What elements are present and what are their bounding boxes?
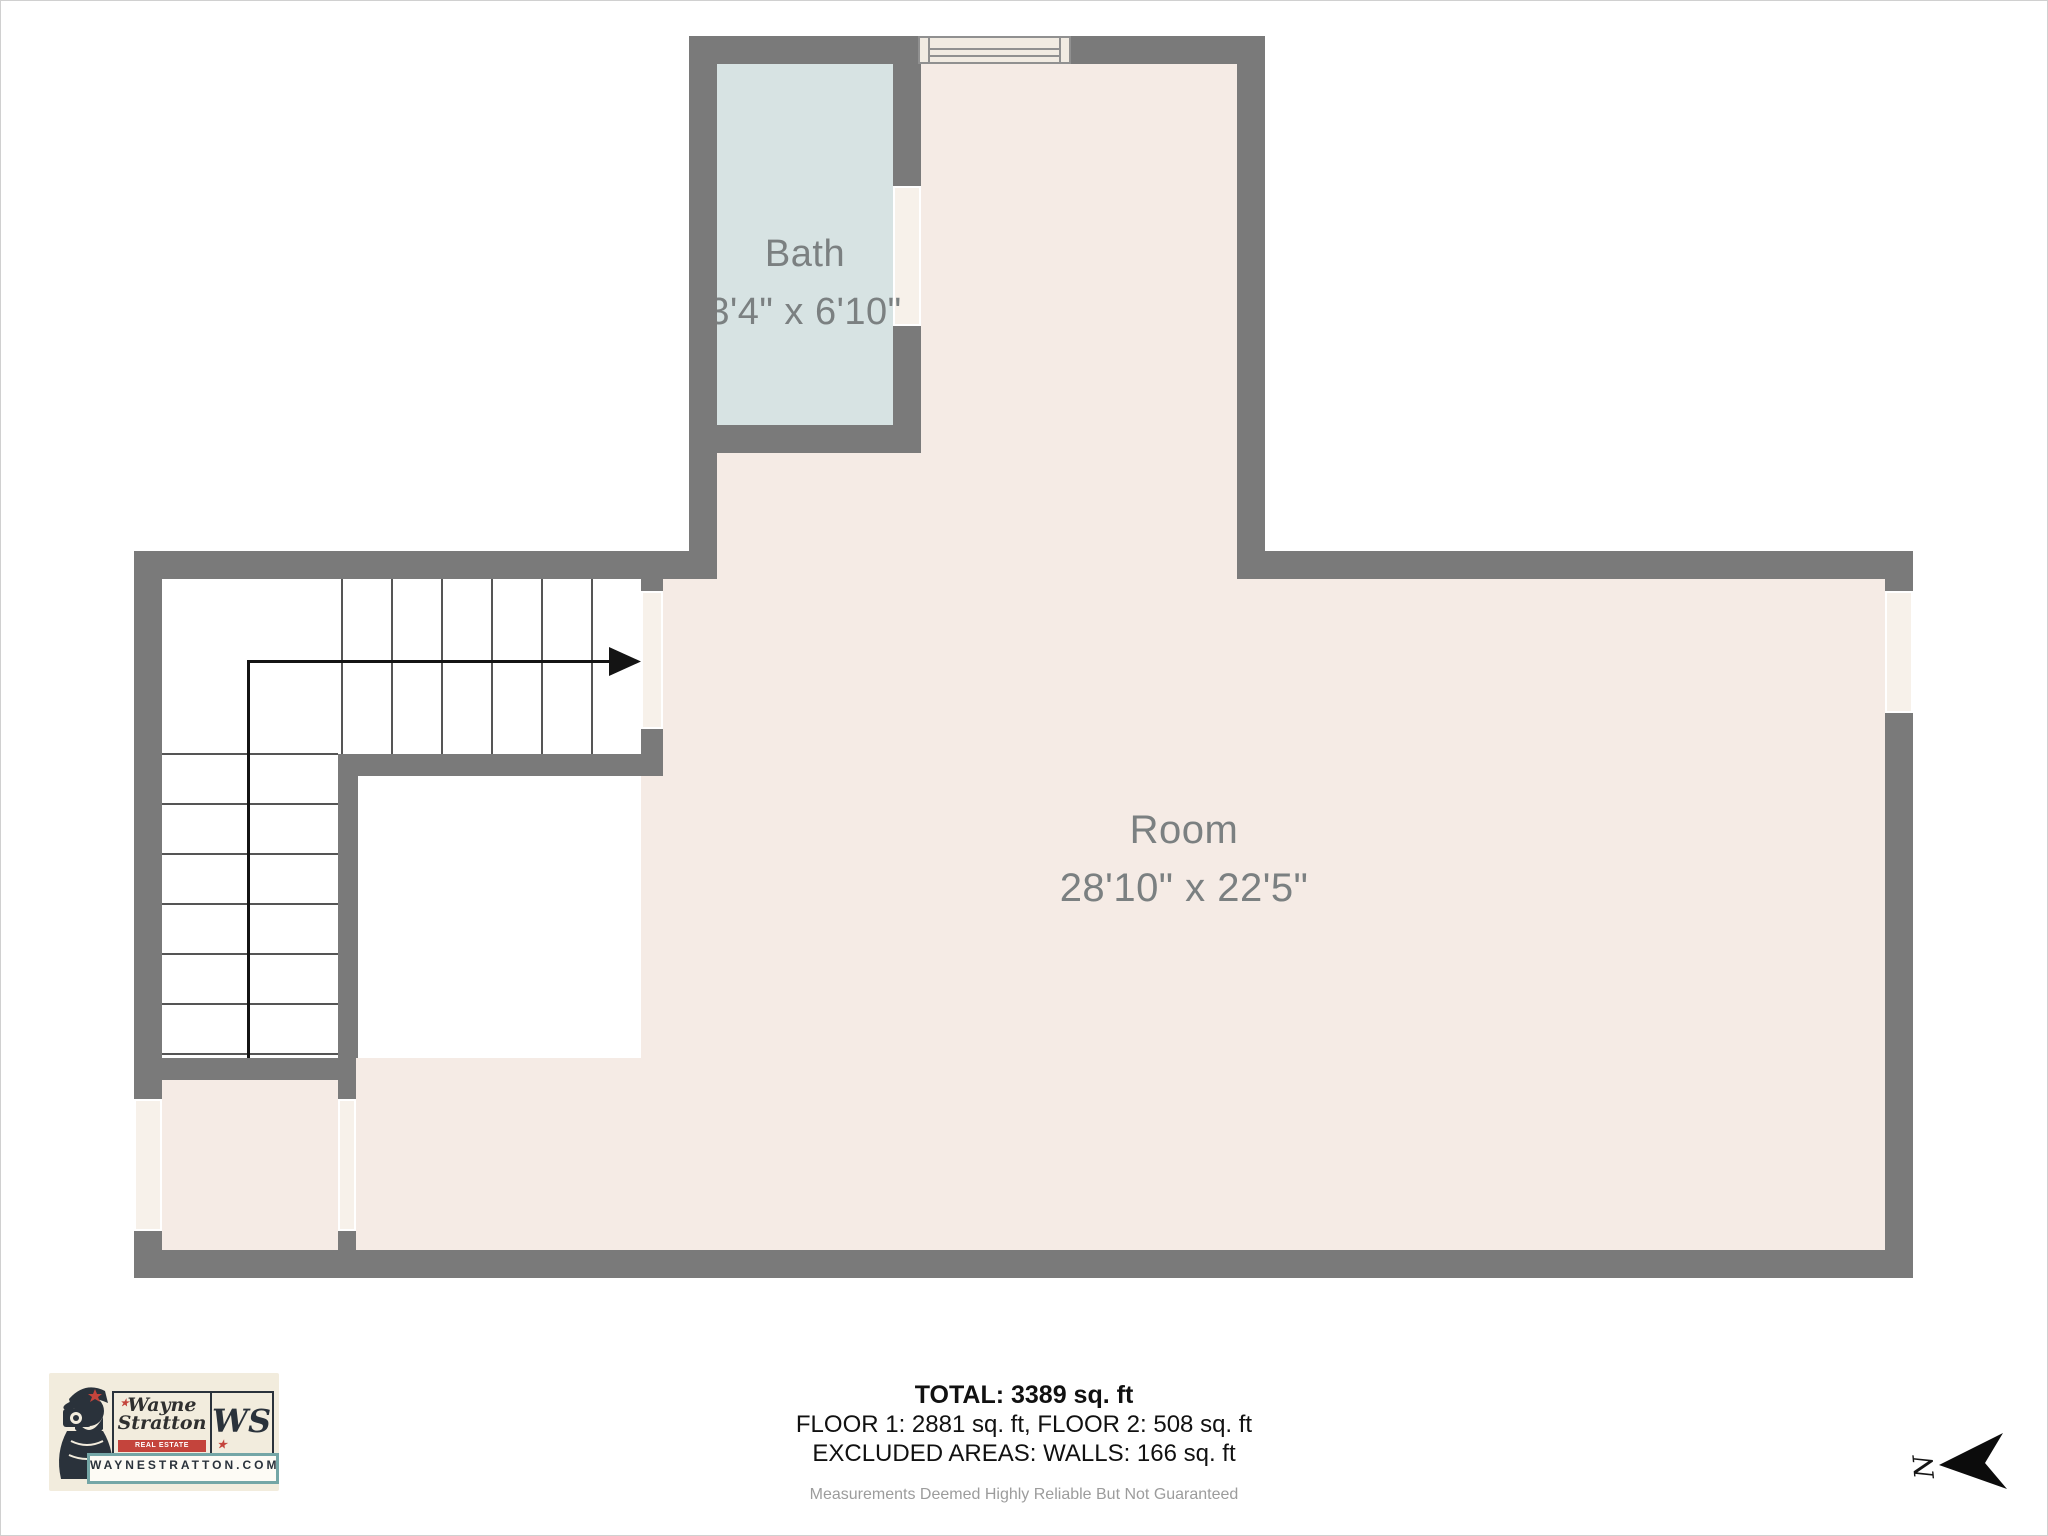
stair-tread-line (162, 1053, 338, 1055)
area-summary: TOTAL: 3389 sq. ft FLOOR 1: 2881 sq. ft,… (1, 1381, 2047, 1468)
wall-exterior-right-lower (1885, 713, 1913, 1278)
wall-closet-right-stub-top (338, 1080, 356, 1099)
wall-below-stair-top-run (338, 754, 663, 776)
window-jamb-line (928, 38, 930, 62)
logo-tagline: REAL ESTATE PHOTOGRAPHY (118, 1440, 206, 1452)
window-pane-line (928, 48, 1061, 50)
wall-lower-top-right (1265, 551, 1913, 579)
stair-tread-line (491, 579, 493, 754)
north-arrow-icon (1937, 1431, 2009, 1491)
closet-door-opening (338, 1099, 356, 1231)
stair-direction-arrow-icon (609, 647, 641, 676)
stair-tread-line (541, 579, 543, 754)
wall-stair-bottom (134, 1058, 356, 1080)
top-wall-window (918, 36, 1071, 64)
logo-monogram: WS ★ (210, 1393, 270, 1455)
wall-closet-right-stub-bottom (338, 1231, 356, 1250)
left-wall-door-opening (134, 1099, 162, 1231)
stair-tread-line (391, 579, 393, 754)
wall-exterior-left-upper (134, 551, 162, 1099)
wall-stair-door-stub-bottom (641, 729, 663, 756)
wall-bath-bottom (689, 425, 921, 453)
main-room-dimensions: 28'10" x 22'5" (984, 859, 1384, 917)
total-area-text: TOTAL: 3389 sq. ft (1, 1381, 2047, 1410)
photographer-logo: ★ Wayne Stratton REAL ESTATE PHOTOGRAPHY… (49, 1373, 279, 1491)
stair-tread-line (341, 579, 343, 754)
stair-tread-line (162, 853, 338, 855)
wall-upper-right (1237, 36, 1265, 579)
stair-door-opening (641, 591, 663, 729)
stair-tread-line (162, 1003, 338, 1005)
main-room-name: Room (984, 801, 1384, 859)
floor-plan-canvas: Bath 3'4" x 6'10" Room 28'10" x 22'5" TO… (0, 0, 2048, 1536)
wall-bath-right-upper (893, 36, 921, 186)
stair-path-horizontal (247, 660, 615, 663)
logo-name: ★ Wayne Stratton REAL ESTATE PHOTOGRAPHY (114, 1393, 210, 1455)
wall-exterior-right-upper (1885, 551, 1913, 591)
wall-upper-left (689, 36, 717, 579)
stairwell-area (162, 579, 641, 1058)
stair-path-vertical (247, 660, 250, 1058)
wall-stair-door-stub-top (641, 579, 663, 591)
wall-exterior-bottom (134, 1250, 1913, 1278)
stair-tread-line (162, 753, 338, 755)
stair-tread-line (162, 903, 338, 905)
disclaimer-text: Measurements Deemed Highly Reliable But … (1, 1486, 2047, 1504)
main-room-label: Room 28'10" x 22'5" (984, 801, 1384, 917)
excluded-areas-text: EXCLUDED AREAS: WALLS: 166 sq. ft (1, 1439, 2047, 1468)
stair-tread-line (591, 579, 593, 754)
wall-bath-right-lower (893, 326, 921, 425)
star-icon: ★ (217, 1440, 227, 1450)
logo-name-panel: ★ Wayne Stratton REAL ESTATE PHOTOGRAPHY… (112, 1391, 274, 1457)
wall-lower-top-left (134, 551, 689, 579)
stair-tread-line (441, 579, 443, 754)
wall-stair-right-divider (338, 754, 358, 1058)
logo-name-line2: Stratton (114, 1414, 210, 1432)
floor-areas-text: FLOOR 1: 2881 sq. ft, FLOOR 2: 508 sq. f… (1, 1410, 2047, 1439)
logo-monogram-text: WS (212, 1402, 271, 1440)
right-wall-window-opening (1885, 591, 1913, 713)
logo-website: WAYNESTRATTON.COM (87, 1453, 279, 1484)
stair-tread-line (162, 803, 338, 805)
window-pane-line (928, 55, 1061, 57)
star-icon: ★ (120, 1399, 129, 1409)
north-letter: N (1908, 1452, 1938, 1482)
window-jamb-line (1059, 38, 1061, 62)
stair-tread-line (162, 953, 338, 955)
